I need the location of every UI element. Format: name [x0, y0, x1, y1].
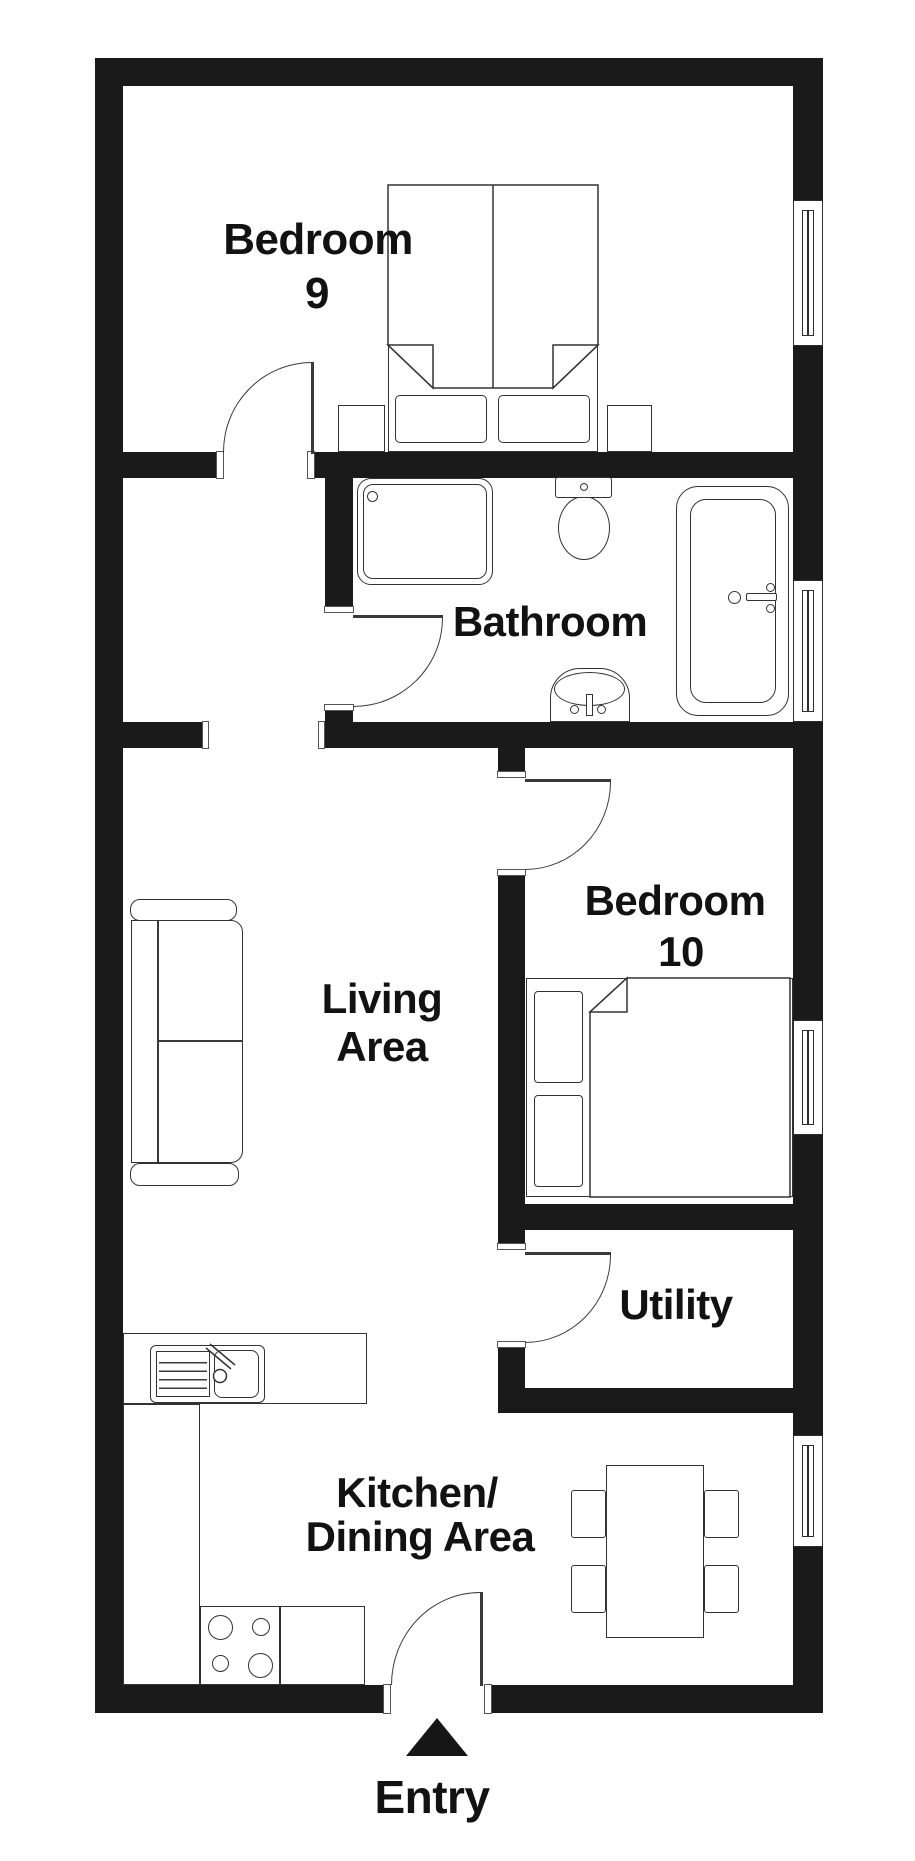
utility-door-swing: [525, 1255, 611, 1343]
bedroom10-label-line1: Bedroom: [585, 880, 766, 922]
stove-burner-large: [248, 1653, 273, 1678]
toilet-bowl: [558, 496, 610, 560]
bathtub-tap-bar: [746, 593, 777, 601]
dining-chair: [704, 1490, 739, 1538]
wall-utility-west-lower: [498, 1348, 525, 1389]
living-label-line1: Living: [322, 978, 443, 1020]
nightstand-left: [338, 405, 385, 452]
bed-pillow: [534, 991, 583, 1083]
outer-wall-bottom-left: [95, 1685, 390, 1713]
window-bathroom: [793, 580, 823, 722]
sofa-seat-split: [157, 1040, 242, 1042]
bathroom-label: Bathroom: [453, 601, 647, 643]
entry-label: Entry: [374, 1774, 489, 1820]
bathtub-tap-knob: [728, 591, 741, 604]
kitchen-counter-left-strip: [123, 1404, 200, 1685]
wall-bedroom9-south-right: [313, 452, 823, 478]
outer-wall-left: [95, 58, 123, 1713]
dining-chair: [571, 1565, 606, 1613]
wall-utility-south: [498, 1388, 823, 1413]
bathroom-door-swing: [353, 618, 443, 707]
bathtub-tap-knob-small: [766, 583, 775, 592]
drainboard-lines: [159, 1355, 207, 1393]
window-glass-midline: [807, 1445, 808, 1537]
living-label-line2: Area: [336, 1026, 427, 1068]
toilet-button: [580, 483, 588, 491]
bathroom-sink-knob: [597, 705, 606, 714]
bathroom-sink-knob: [570, 705, 579, 714]
bedroom9-door-swing: [223, 362, 312, 452]
outer-wall-top: [95, 58, 823, 86]
wall-utility-west-upper: [498, 1230, 525, 1244]
bed-pillow: [498, 395, 590, 443]
door-jamb: [497, 1341, 526, 1348]
bathroom-sink-tap: [586, 694, 593, 716]
bed-pillow: [395, 395, 487, 443]
door-jamb: [324, 606, 354, 613]
shower-drain: [367, 491, 378, 502]
outer-wall-bottom-right: [485, 1685, 823, 1713]
nightstand-right: [607, 405, 652, 452]
wall-bathroom-west-upper: [325, 452, 353, 608]
wall-bedroom10-west-stub: [498, 748, 525, 773]
dining-table: [606, 1465, 704, 1638]
kitchen-label-line2: Dining Area: [306, 1516, 535, 1558]
sofa-armrest-top: [130, 899, 237, 921]
door-jamb: [307, 451, 315, 479]
door-jamb: [324, 704, 354, 711]
bedroom10-label-line2: 10: [658, 931, 704, 973]
kitchen-counter-right-of-stove: [280, 1606, 365, 1685]
wall-bedroom9-south-left: [123, 452, 218, 478]
wall-bedroom10-west: [498, 876, 525, 1230]
stove-burner-small: [212, 1655, 229, 1672]
bedroom10-door-swing: [525, 782, 611, 870]
door-jamb: [484, 1684, 492, 1714]
window-glass-midline: [807, 1030, 808, 1125]
wall-bathroom-south: [322, 722, 823, 748]
sofa-armrest-bottom: [130, 1163, 239, 1186]
opening-jamb: [202, 721, 209, 749]
bedroom9-label-line2: 9: [305, 272, 329, 316]
entry-door-swing: [391, 1592, 480, 1685]
window-bedroom9: [793, 200, 823, 346]
door-jamb: [497, 771, 526, 778]
kitchen-drainboard: [156, 1351, 210, 1397]
shower-tray-inner: [363, 484, 487, 579]
door-jamb: [497, 1243, 526, 1250]
dining-chair: [571, 1490, 606, 1538]
sofa-body: [131, 920, 243, 1163]
door-jamb: [497, 869, 526, 876]
wall-bedroom10-south: [498, 1204, 823, 1230]
dining-chair: [704, 1565, 739, 1613]
door-jamb: [216, 451, 224, 479]
bedroom9-label-line1: Bedroom: [223, 218, 413, 262]
kitchen-sink-basin: [214, 1350, 259, 1398]
door-jamb: [383, 1684, 391, 1714]
entry-arrow-icon: [406, 1718, 468, 1756]
window-kitchen: [793, 1435, 823, 1547]
window-glass-midline: [807, 210, 808, 336]
stove-burner-large: [208, 1615, 233, 1640]
utility-label: Utility: [619, 1284, 732, 1326]
floor-plan: Bedroom 9 Bathroom Living Area Bedroom 1…: [0, 0, 915, 1861]
bathtub-tap-knob-small: [766, 604, 775, 613]
window-glass-midline: [807, 590, 808, 712]
bed-pillow: [534, 1095, 583, 1187]
entry-door-leaf: [480, 1592, 483, 1686]
opening-jamb: [318, 721, 325, 749]
sofa-back-line: [157, 921, 159, 1162]
kitchen-label-line1: Kitchen/: [336, 1472, 498, 1514]
wall-hall-stub: [123, 722, 208, 748]
stove-burner-small: [252, 1618, 270, 1636]
window-bedroom10: [793, 1020, 823, 1135]
